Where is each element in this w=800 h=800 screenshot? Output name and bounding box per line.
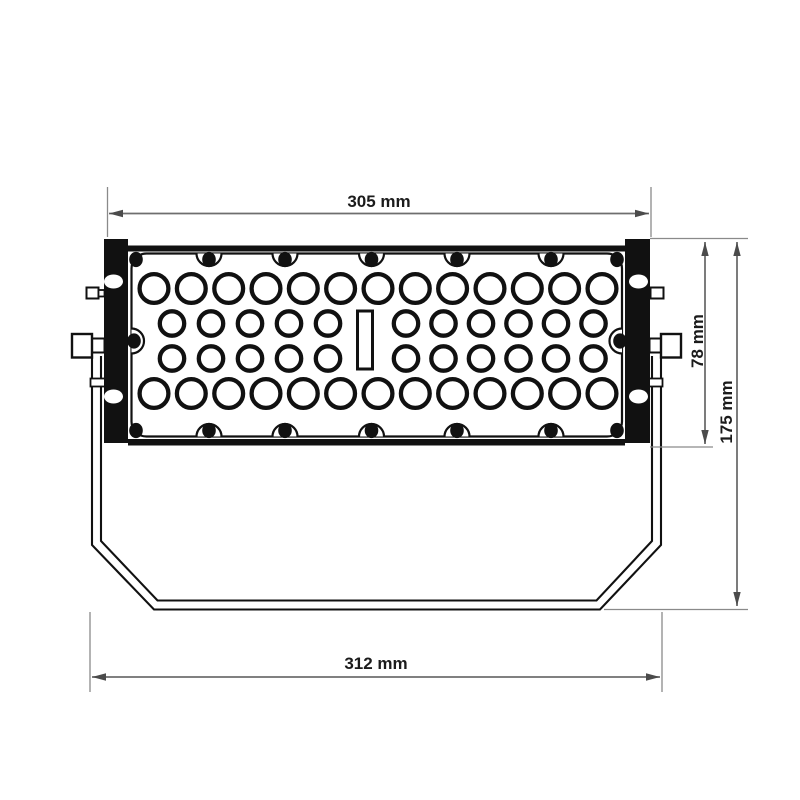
right-end-bracket — [625, 239, 650, 443]
perforation-hole — [238, 311, 262, 335]
screw-dot — [613, 333, 627, 348]
screw-dot — [610, 423, 624, 438]
perforation-hole — [431, 346, 455, 370]
perforation-hole — [252, 274, 281, 303]
perforation-hole — [476, 379, 505, 408]
dimension-top-width: 305 mm — [108, 187, 652, 237]
arrow-up-icon — [701, 242, 708, 256]
perforation-hole — [401, 274, 430, 303]
perforation-hole — [513, 379, 542, 408]
perforation-hole — [326, 274, 355, 303]
perforation-hole — [544, 346, 568, 370]
screw-dot — [278, 423, 292, 438]
screw-dot — [544, 252, 558, 267]
arrow-right-icon — [646, 673, 660, 680]
cable-tab-left-neck — [99, 290, 105, 297]
perforation-hole — [277, 311, 301, 335]
screw-dot — [202, 423, 216, 438]
perforation-hole — [160, 311, 184, 335]
perforation-hole — [160, 346, 184, 370]
bracket-hole-right-top — [629, 275, 648, 289]
dimension-total-height-label: 175 mm — [717, 380, 736, 443]
arrow-left-icon — [109, 210, 123, 217]
perforation-hole — [588, 274, 617, 303]
perforation-hole — [506, 311, 530, 335]
screw-dot — [202, 252, 216, 267]
cable-tab-left — [87, 288, 99, 299]
housing-top-bar — [128, 246, 625, 252]
bracket-hole-left-top — [104, 275, 123, 289]
perforation-hole — [252, 379, 281, 408]
pivot-knob-right — [661, 334, 681, 358]
screw-dot — [450, 423, 464, 438]
dimension-bottom-width: 312 mm — [90, 612, 662, 692]
perforation-hole — [394, 311, 418, 335]
arrow-right-icon — [635, 210, 649, 217]
arrow-down-icon — [701, 430, 708, 444]
bracket-hole-left-bottom — [104, 390, 123, 404]
screw-dot — [450, 252, 464, 267]
perforation-hole — [401, 379, 430, 408]
perforation-hole — [581, 311, 605, 335]
floodlight-dimension-drawing: 305 mm — [0, 0, 800, 800]
dimension-top-width-label: 305 mm — [347, 192, 410, 211]
perforation-hole — [588, 379, 617, 408]
perforation-hole — [177, 379, 206, 408]
perforation-hole — [316, 311, 340, 335]
perforation-hole — [469, 311, 493, 335]
pivot-neck-left — [92, 339, 105, 353]
perforation-hole — [550, 274, 579, 303]
cable-tab-right — [651, 288, 664, 299]
dimension-body-height-label: 78 mm — [688, 314, 707, 368]
perforation-hole — [277, 346, 301, 370]
perforation-hole — [476, 274, 505, 303]
arrow-up-icon — [733, 242, 740, 256]
housing-bottom-bar — [128, 439, 625, 446]
screw-dot — [610, 252, 624, 267]
left-end-bracket — [104, 239, 128, 443]
perforation-hole — [506, 346, 530, 370]
perforation-hole — [438, 379, 467, 408]
perforation-hole — [550, 379, 579, 408]
perforation-hole — [394, 346, 418, 370]
perforation-hole — [214, 379, 243, 408]
pivot-neck-right — [650, 339, 662, 353]
arrow-down-icon — [733, 592, 740, 606]
perforation-hole — [238, 346, 262, 370]
perforation-hole — [177, 274, 206, 303]
perforation-hole — [326, 379, 355, 408]
perforation-hole — [199, 346, 223, 370]
bracket-hole-right-bottom — [629, 390, 648, 404]
perforation-hole — [581, 346, 605, 370]
perforation-hole — [513, 274, 542, 303]
perforation-hole — [364, 274, 393, 303]
perforation-hole — [140, 274, 169, 303]
technical-drawing-canvas: 305 mm — [0, 0, 800, 800]
perforation-hole — [544, 311, 568, 335]
perforation-hole — [199, 311, 223, 335]
screw-dot — [544, 423, 558, 438]
screw-dot — [129, 423, 143, 438]
perforation-hole — [140, 379, 169, 408]
perforation-hole — [316, 346, 340, 370]
perforation-hole — [431, 311, 455, 335]
screw-dot — [365, 423, 379, 438]
perforation-hole — [214, 274, 243, 303]
perforation-hole — [289, 274, 318, 303]
perforation-hole — [364, 379, 393, 408]
perforation-hole — [438, 274, 467, 303]
screw-dot — [129, 252, 143, 267]
arrow-left-icon — [92, 673, 106, 680]
dimension-bottom-width-label: 312 mm — [344, 654, 407, 673]
center-slot — [358, 311, 373, 369]
lamp-housing — [104, 239, 650, 446]
screw-dot — [278, 252, 292, 267]
perforation-hole — [289, 379, 318, 408]
perforation-hole — [469, 346, 493, 370]
screw-dot — [365, 252, 379, 267]
pivot-knob-left — [72, 334, 92, 358]
screw-dot — [127, 333, 141, 348]
